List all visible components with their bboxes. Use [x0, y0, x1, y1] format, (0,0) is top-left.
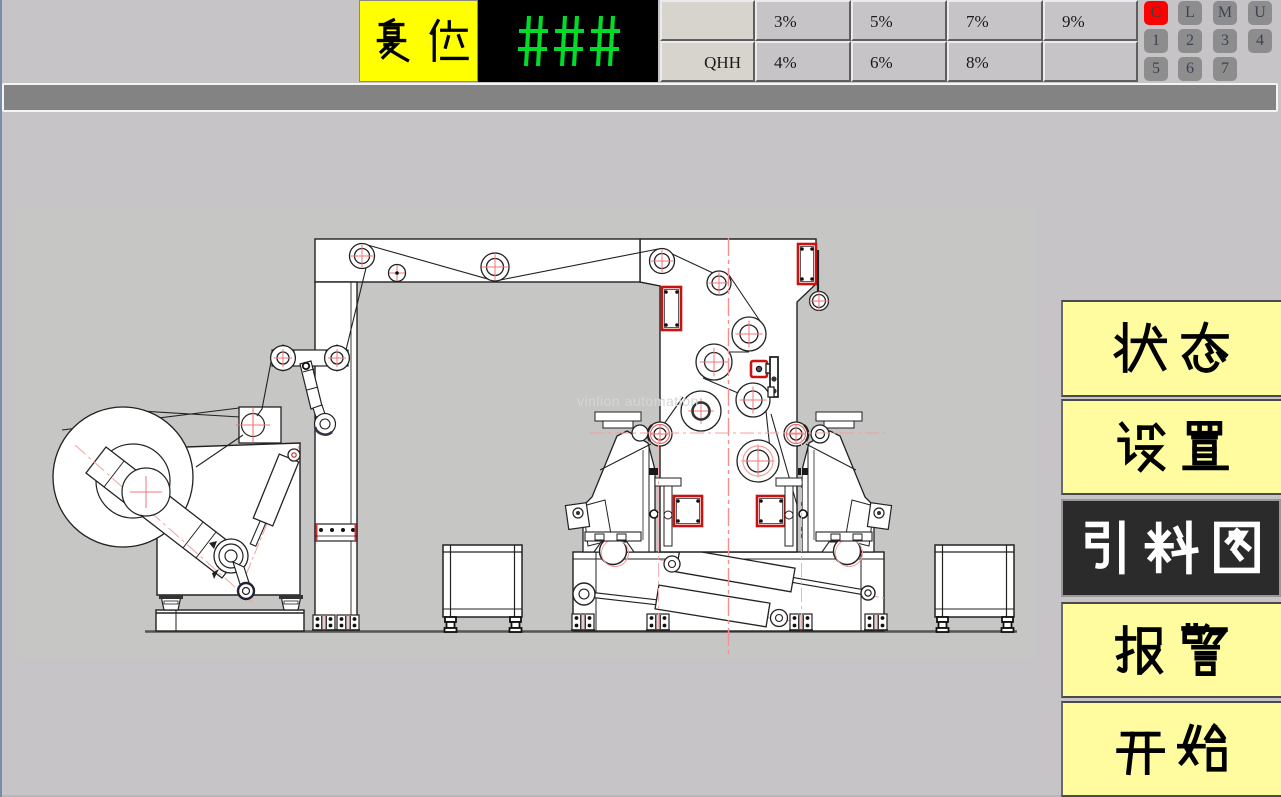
svg-text:vinlion automation: vinlion automation [577, 393, 699, 409]
